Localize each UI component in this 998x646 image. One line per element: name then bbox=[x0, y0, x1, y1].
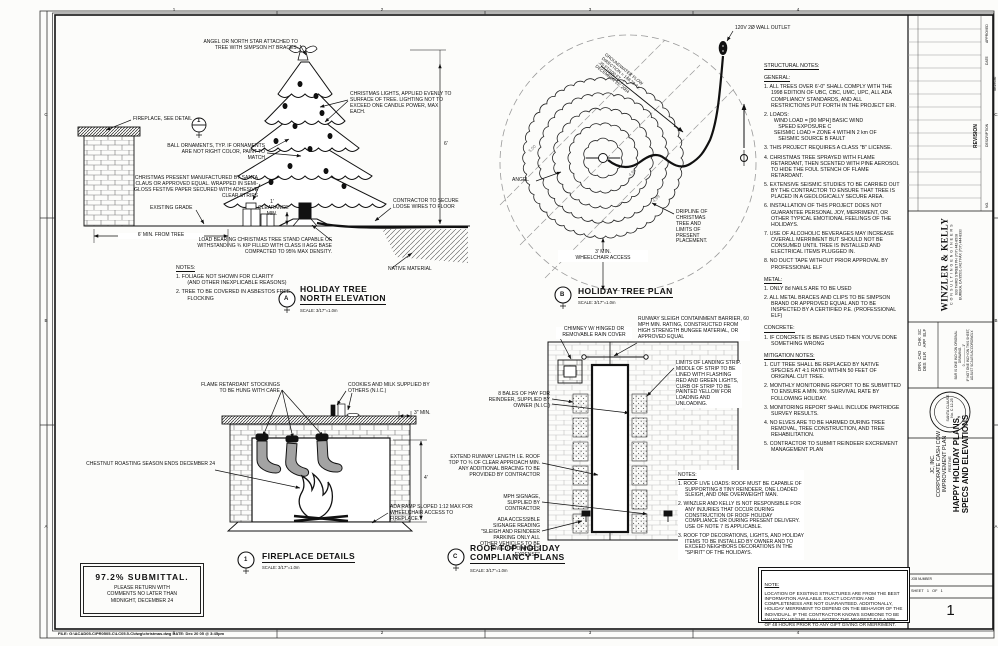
native-material-callout: NATIVE MATERIAL bbox=[388, 267, 450, 273]
firm-block: WINZLER & KELLY C O N S U L T I N G E N … bbox=[940, 212, 963, 318]
fireplace-cap bbox=[78, 127, 140, 136]
roof-chimney bbox=[558, 360, 582, 383]
of-total: 1 bbox=[941, 589, 943, 593]
angel-plan-callout: ANGEL bbox=[512, 178, 540, 184]
note-item: 1. ALL TREES OVER 6'-0" SHALL COMPLY WIT… bbox=[764, 84, 902, 109]
big-sheet-number: 1 bbox=[908, 602, 993, 619]
stockings-callout: FLAME RETARDANT STOCKINGS TO BE HUNG WIT… bbox=[200, 383, 280, 395]
fields-line2: DES ELR APP ELF bbox=[922, 320, 927, 380]
concrete-heading: CONCRETE: bbox=[764, 325, 795, 332]
note-item: 7. USE OF ALCOHOLIC BEVERAGES MAY INCREA… bbox=[764, 231, 902, 256]
submittal-body: PLEASE RETURN WITH COMMENTS NO LATER THA… bbox=[84, 585, 200, 604]
fireplace-tag: 1 bbox=[244, 557, 247, 563]
note-item: 3. ROOF TOP DECORATIONS, LIGHTS, AND HOL… bbox=[678, 534, 804, 557]
cookies-callout: COOKIES AND MILK SUPPLIED BY OTHERS (N.I… bbox=[348, 383, 434, 395]
cookies-and-milk bbox=[331, 404, 359, 417]
tree-plan-title: HOLIDAY TREE PLAN bbox=[578, 287, 673, 298]
mph-callout: MPH SIGNAGE, SUPPLIED BY CONTRACTOR bbox=[478, 495, 540, 513]
fireplace-column bbox=[84, 136, 134, 226]
rev-date-label: DATE bbox=[985, 45, 989, 65]
tree-elevation-drawing bbox=[78, 46, 470, 263]
note-item: 2. MONTHLY MONITORING REPORT TO BE SUBMI… bbox=[764, 383, 902, 401]
mitigation-heading: MITIGATION NOTES: bbox=[764, 353, 815, 360]
of-word: OF bbox=[932, 589, 937, 593]
dripline-callout: DRIPLINE OF CHRISTMAS TREE AND LIMITS OF… bbox=[676, 210, 712, 245]
north-arrow bbox=[741, 104, 748, 166]
note-item: 4. CHRISTMAS TREE SPRAYED WITH FLAME RET… bbox=[764, 155, 902, 180]
structural-notes-heading: STRUCTURAL NOTES: bbox=[764, 63, 819, 70]
grid-col-label: 4 bbox=[794, 630, 802, 635]
tree-height-dim: 6' bbox=[444, 142, 448, 148]
firm-subtitle: C O N S U L T I N G E N G I N E E R S bbox=[950, 212, 954, 318]
grid-row-label: C bbox=[42, 112, 50, 117]
tree-trunk bbox=[299, 203, 311, 219]
loose-wire bbox=[317, 223, 468, 228]
grid-col-label: 1 bbox=[170, 7, 178, 12]
detail-ref-number: 1 bbox=[197, 118, 200, 124]
firm-name: WINZLER & KELLY bbox=[940, 212, 950, 318]
notes-heading: NOTES: bbox=[176, 265, 195, 272]
mantel bbox=[222, 416, 416, 424]
grid-col-label: 3 bbox=[586, 7, 594, 12]
existing-grade-callout: EXISTING GRADE bbox=[150, 206, 196, 212]
note-item: 3. MONITORING REPORT SHALL INCLUDE PARTR… bbox=[764, 405, 902, 417]
general-heading: GENERAL: bbox=[764, 75, 790, 82]
bar-scale-note: BAR IS ONE INCH ON ORIGINAL DRAWING. 0 —… bbox=[954, 327, 974, 383]
grid-row-label: B bbox=[993, 318, 998, 323]
roof-plan-title: ROOF TOP HOLIDAY COMPLIANCY PLANS bbox=[470, 544, 565, 564]
grid-col-label: 3 bbox=[586, 630, 594, 635]
metal-heading: METAL: bbox=[764, 277, 782, 284]
grid-row-label: B bbox=[42, 318, 50, 323]
roof-notes-heading: NOTES: bbox=[678, 473, 697, 480]
structural-notes: STRUCTURAL NOTES: GENERAL: 1. ALL TREES … bbox=[764, 60, 902, 457]
roof-plan-tag: C bbox=[453, 554, 457, 560]
note-item: 5. EXTENSIVE SEISMIC STUDIES TO BE CARRI… bbox=[764, 182, 902, 200]
grid-row-label: C bbox=[993, 112, 998, 117]
grid-col-label: 4 bbox=[794, 7, 802, 12]
fireplace-ref-callout: FIREPLACE, SEE DETAIL bbox=[133, 117, 195, 123]
elevation-tag: A bbox=[284, 296, 288, 302]
note-item: 2. ALL METAL BRACES AND CLIPS TO BE SIMP… bbox=[764, 295, 902, 320]
ada-ramp-callout: ADA RAMP SLOPED 1:12 MAX FOR WHEELCHAIR … bbox=[390, 505, 474, 523]
sheet-title: HAPPY HOLIDAY PLANS, SPECS AND ELEVATION… bbox=[952, 399, 970, 529]
grid-row-label: A bbox=[993, 524, 998, 529]
note-item: 1. ONLY 8d NAILS ARE TO BE USED bbox=[764, 286, 902, 292]
grid-row-label: A bbox=[42, 524, 50, 529]
revision-table-rows bbox=[908, 16, 981, 211]
note-item: 1. ROOF LIVE LOADS: ROOF MUST BE CAPABLE… bbox=[678, 482, 804, 499]
existing-structures-note-box: NOTE: LOCATION OF EXISTING STRUCTURES AR… bbox=[758, 567, 910, 623]
fireplace-height-dim: 4' bbox=[424, 476, 428, 482]
sheet-no: 1 bbox=[927, 589, 929, 593]
outlet-callout: 120V 2Ø WALL OUTLET bbox=[735, 26, 815, 32]
rev-approved-label: APPROVED bbox=[985, 11, 989, 43]
lights-callout: CHRISTMAS LIGHTS, APPLIED EVENLY TO SURF… bbox=[350, 92, 454, 116]
tree-plan-scale: SCALE: 3/17"=1.0m bbox=[578, 300, 615, 305]
chestnut-callout: CHESTNUT ROASTING SEASON ENDS DECEMBER 2… bbox=[75, 462, 215, 468]
metal-notes-list: 1. ONLY 8d NAILS ARE TO BE USED2. ALL ME… bbox=[764, 286, 902, 320]
submittal-title: 97.2% SUBMITTAL. bbox=[84, 572, 200, 582]
note-item: 3. THIS PROJECT REQUIRES A CLASS "B" LIC… bbox=[764, 145, 902, 151]
roof-notes: NOTES: 1. ROOF LIVE LOADS: ROOF MUST BE … bbox=[678, 470, 804, 560]
rev-no-label: NO. bbox=[985, 192, 989, 208]
native-material-hatch bbox=[382, 229, 468, 263]
three-min-dim: 3" MIN. bbox=[414, 411, 431, 417]
tree-stand-plan bbox=[586, 154, 620, 163]
fireplace-detail-drawing bbox=[222, 404, 416, 531]
note-item: 8. NO DUCT TAPE WITHOUT PRIOR APPROVAL B… bbox=[764, 258, 902, 270]
sheet-count: SHEET 1 OF 1 bbox=[911, 589, 943, 593]
fireplace-title: FIREPLACE DETAILS bbox=[262, 552, 355, 563]
rev-description-label: DESCRIPTION bbox=[985, 111, 989, 147]
drawn-checked-fields: DRN CAD CHK SC DES ELR APP ELF bbox=[917, 320, 927, 380]
sheet-word: SHEET bbox=[911, 589, 924, 593]
tree-stand-callout: LOAD BEARING CHRISTMAS TREE STAND CAPABL… bbox=[178, 238, 332, 256]
drawing-sheet: 1 2 3 4 1 2 3 4 C B A C B A SE29536 FILE… bbox=[0, 0, 998, 646]
revision-label: REVISION bbox=[973, 114, 979, 148]
ornaments-callout: BALL ORNAMENTS, TYP. IF ORNAMENTS ARE NO… bbox=[165, 144, 265, 162]
submittal-stamp: 97.2% SUBMITTAL. PLEASE RETURN WITH COMM… bbox=[80, 563, 204, 617]
general-notes-list: 1. ALL TREES OVER 6'-0" SHALL COMPLY WIT… bbox=[764, 84, 902, 270]
note-box-heading: NOTE: bbox=[765, 583, 780, 588]
wall-outlet bbox=[719, 42, 727, 55]
hay-callout: 8 BALES OF HAY FOR REINDEER, SUPPLIED BY… bbox=[488, 392, 550, 410]
clearance-dim-label: 1' CLEARANCE MIN. bbox=[258, 200, 286, 218]
runway bbox=[592, 365, 628, 532]
note-item: 2. LOADS: WIND LOAD = [90 MPH] BASIC WIN… bbox=[764, 112, 902, 143]
mitigation-notes-list: 1. CUT TREE SHALL BE REPLACED BY NATIVE … bbox=[764, 362, 902, 454]
elevation-title: HOLIDAY TREE NORTH ELEVATION bbox=[300, 285, 386, 305]
edge-code: SE29536 bbox=[993, 57, 997, 91]
runway-callout: EXTEND RUNWAY LENGTH I.E. ROOF TOP TO ¾ … bbox=[445, 455, 540, 479]
roof-notes-list: 1. ROOF LIVE LOADS: ROOF MUST BE CAPABLE… bbox=[678, 482, 804, 557]
grid-col-label: 2 bbox=[378, 630, 386, 635]
hearth-ramp bbox=[228, 522, 412, 531]
tree-plan-tag: B bbox=[560, 292, 564, 298]
note-box-body: LOCATION OF EXISTING STRUCTURES ARE FROM… bbox=[765, 591, 904, 628]
note-item: 5. CONTRACTOR TO SUBMIT REINDEER EXCREME… bbox=[764, 441, 902, 453]
angel-callout: ANGEL OR NORTH STAR ATTACHED TO TREE WIT… bbox=[192, 40, 298, 52]
note-item: 6. INSTALLATION OF THIS PROJECT DOES NOT… bbox=[764, 203, 902, 228]
note-item: 1. IF CONCRETE IS BEING USED THEN YOU'VE… bbox=[764, 335, 902, 347]
elevation-scale: SCALE: 3/17"=1.0m bbox=[300, 308, 337, 313]
wires-callout: CONTRACTOR TO SECURE LOOSE WIRES TO FLOO… bbox=[393, 199, 471, 211]
grid-col-label: 2 bbox=[378, 7, 386, 12]
project-title-block: JC, INC. CORPORATE CASH COW IMPROVEMENT … bbox=[930, 399, 970, 529]
note-item: 1. CUT TREE SHALL BE REPLACED BY NATIVE … bbox=[764, 362, 902, 380]
chimney-callout: CHIMNEY W/ HINGED OR REMOVABLE RAIN COVE… bbox=[556, 327, 632, 339]
plot-footer: FILE: G:\ACAD05-C\PR0505-C\LC05.5-C\dwg\… bbox=[58, 632, 224, 637]
bar-note1: BAR IS ONE INCH ON ORIGINAL DRAWING. bbox=[954, 327, 962, 383]
roof-plan-scale: SCALE: 3/17"=1.0m bbox=[470, 568, 507, 573]
present-callout: CHRISTMAS PRESENT MANUFACTURED BY SANTA … bbox=[128, 176, 258, 200]
job-number-label: JOB NUMBER bbox=[911, 577, 932, 581]
firm-address2: EUREKA, CA 95501-0417 FAX (707) 444-8330 bbox=[959, 212, 963, 318]
note-item: 2. WINZLER AND KELLY IS NOT RESPONSIBLE … bbox=[678, 502, 804, 531]
bar-note3: IF NOT ONE INCH ON THIS SHEET, ADJUST SC… bbox=[966, 327, 974, 383]
fireplace-scale: SCALE: 3/17"=1.0m bbox=[262, 565, 299, 570]
wheelchair-dim-label: 3' MIN. WHEELCHAIR ACCESS bbox=[558, 250, 648, 262]
barrier-callout: RUNWAY SLEIGH CONTAINMENT BARRIER, 60 MP… bbox=[638, 317, 750, 341]
limits-callout: LIMITS OF LANDING STRIP. MIDDLE OF STRIP… bbox=[676, 361, 742, 408]
concrete-notes-list: 1. IF CONCRETE IS BEING USED THEN YOU'VE… bbox=[764, 335, 902, 347]
note-item: 4. NO ELVES ARE TO BE HARMED DURING TREE… bbox=[764, 420, 902, 438]
